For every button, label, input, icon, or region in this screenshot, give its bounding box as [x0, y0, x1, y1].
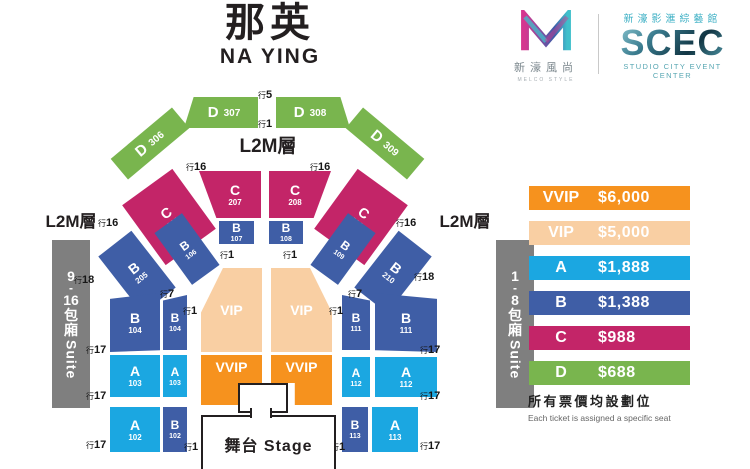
row-label: 行1	[283, 245, 297, 263]
section-d-307: D307	[184, 97, 258, 128]
level-label-center: L2M層	[218, 131, 318, 158]
stage-runway-neck	[250, 408, 272, 418]
scec-logo: 新濠影滙綜藝館 SCEC STUDIO CITY EVENT CENTER	[607, 6, 738, 80]
ticket-note: 所有票價均設劃位 Each ticket is assigned a speci…	[528, 391, 728, 423]
price-legend: VVIP $6,000 VIP $5,000 A $1,888 B $1,388…	[529, 186, 690, 396]
ticket-note-english: Each ticket is assigned a specific seat	[528, 413, 728, 423]
legend-row-b: B $1,388	[529, 291, 690, 315]
melco-m-icon	[518, 10, 574, 52]
melco-style-logo: 新濠風尚 MELCO STYLE	[498, 6, 594, 83]
legend-price: $6,000	[593, 189, 690, 207]
section-b-104-outer: B104	[110, 293, 160, 352]
row-label: 行17	[86, 340, 106, 358]
legend-row-c: C $988	[529, 326, 690, 350]
row-label: 行17	[86, 435, 106, 453]
section-vip-left: VIP	[201, 268, 262, 352]
legend-category: A	[529, 259, 593, 277]
row-label: 行1	[184, 437, 198, 455]
legend-category: VIP	[529, 224, 593, 242]
section-b-111-inner: B111	[342, 295, 370, 350]
legend-price: $1,888	[593, 259, 690, 277]
row-label: 行17	[86, 386, 106, 404]
section-a-113: A113	[372, 407, 418, 452]
section-a-103-inner: A103	[163, 355, 187, 397]
legend-row-vip: VIP $5,000	[529, 221, 690, 245]
legend-price: $988	[593, 329, 690, 347]
row-label: 行5	[258, 85, 272, 103]
section-c-208: C208	[269, 171, 331, 218]
section-d-308: D308	[276, 97, 350, 128]
row-label: 行17	[420, 436, 440, 454]
seating-chart-poster: 那英 NA YING 新濠風尚 MELCO STYLE 新濠影滙綜藝館 SC	[0, 0, 750, 469]
section-b-107: B107	[219, 221, 254, 244]
stage-label: 舞台 Stage	[224, 432, 312, 456]
row-label: 行1	[183, 301, 197, 319]
row-label: 行1	[329, 301, 343, 319]
section-c-207: C207	[199, 171, 261, 218]
legend-price: $5,000	[593, 224, 690, 242]
row-label: 行1	[220, 245, 234, 263]
section-d-306: D306	[111, 107, 190, 179]
legend-category: C	[529, 329, 593, 347]
section-vip-right: VIP	[271, 268, 332, 352]
legend-category: D	[529, 364, 593, 382]
legend-row-d: D $688	[529, 361, 690, 385]
row-label: 行16	[310, 157, 330, 175]
row-label: 行17	[420, 340, 440, 358]
section-a-112-inner: A112	[342, 357, 370, 397]
suite-bar-left: 9 - 16 包 廂 Suite	[52, 240, 90, 408]
section-b-113: B113	[342, 407, 368, 452]
scec-wordmark: SCEC	[607, 25, 738, 61]
section-a-103-outer: A103	[110, 355, 160, 397]
artist-name-english: NA YING	[150, 45, 390, 69]
row-label: 行16	[186, 157, 206, 175]
row-label: 行7	[348, 284, 362, 302]
event-title: 那英 NA YING	[150, 2, 390, 69]
section-b-108: B108	[269, 221, 303, 244]
section-a-102: A102	[110, 407, 160, 452]
legend-row-a: A $1,888	[529, 256, 690, 280]
legend-price: $688	[593, 364, 690, 382]
row-label: 行16	[98, 213, 118, 231]
level-label-left: L2M層	[40, 207, 102, 232]
venue-logos: 新濠風尚 MELCO STYLE 新濠影滙綜藝館 SCEC STUDIO CIT…	[498, 6, 738, 86]
melco-style-english: MELCO STYLE	[498, 77, 594, 83]
row-label: 行17	[420, 386, 440, 404]
row-label: 行7	[160, 284, 174, 302]
legend-price: $1,388	[593, 294, 690, 312]
melco-style-chinese: 新濠風尚	[498, 59, 594, 75]
legend-row-vvip: VVIP $6,000	[529, 186, 690, 210]
legend-category: B	[529, 294, 593, 312]
ticket-note-chinese: 所有票價均設劃位	[528, 391, 728, 410]
stage: 舞台 Stage	[201, 415, 336, 469]
row-label: 行18	[414, 267, 434, 285]
level-label-right: L2M層	[434, 207, 496, 232]
row-label: 行18	[74, 270, 94, 288]
legend-category: VVIP	[529, 189, 593, 207]
scec-english-name: STUDIO CITY EVENT CENTER	[607, 62, 738, 80]
row-label: 行16	[396, 213, 416, 231]
artist-name-chinese: 那英	[150, 2, 390, 44]
row-label: 行1	[258, 114, 272, 132]
logo-divider	[598, 14, 599, 74]
